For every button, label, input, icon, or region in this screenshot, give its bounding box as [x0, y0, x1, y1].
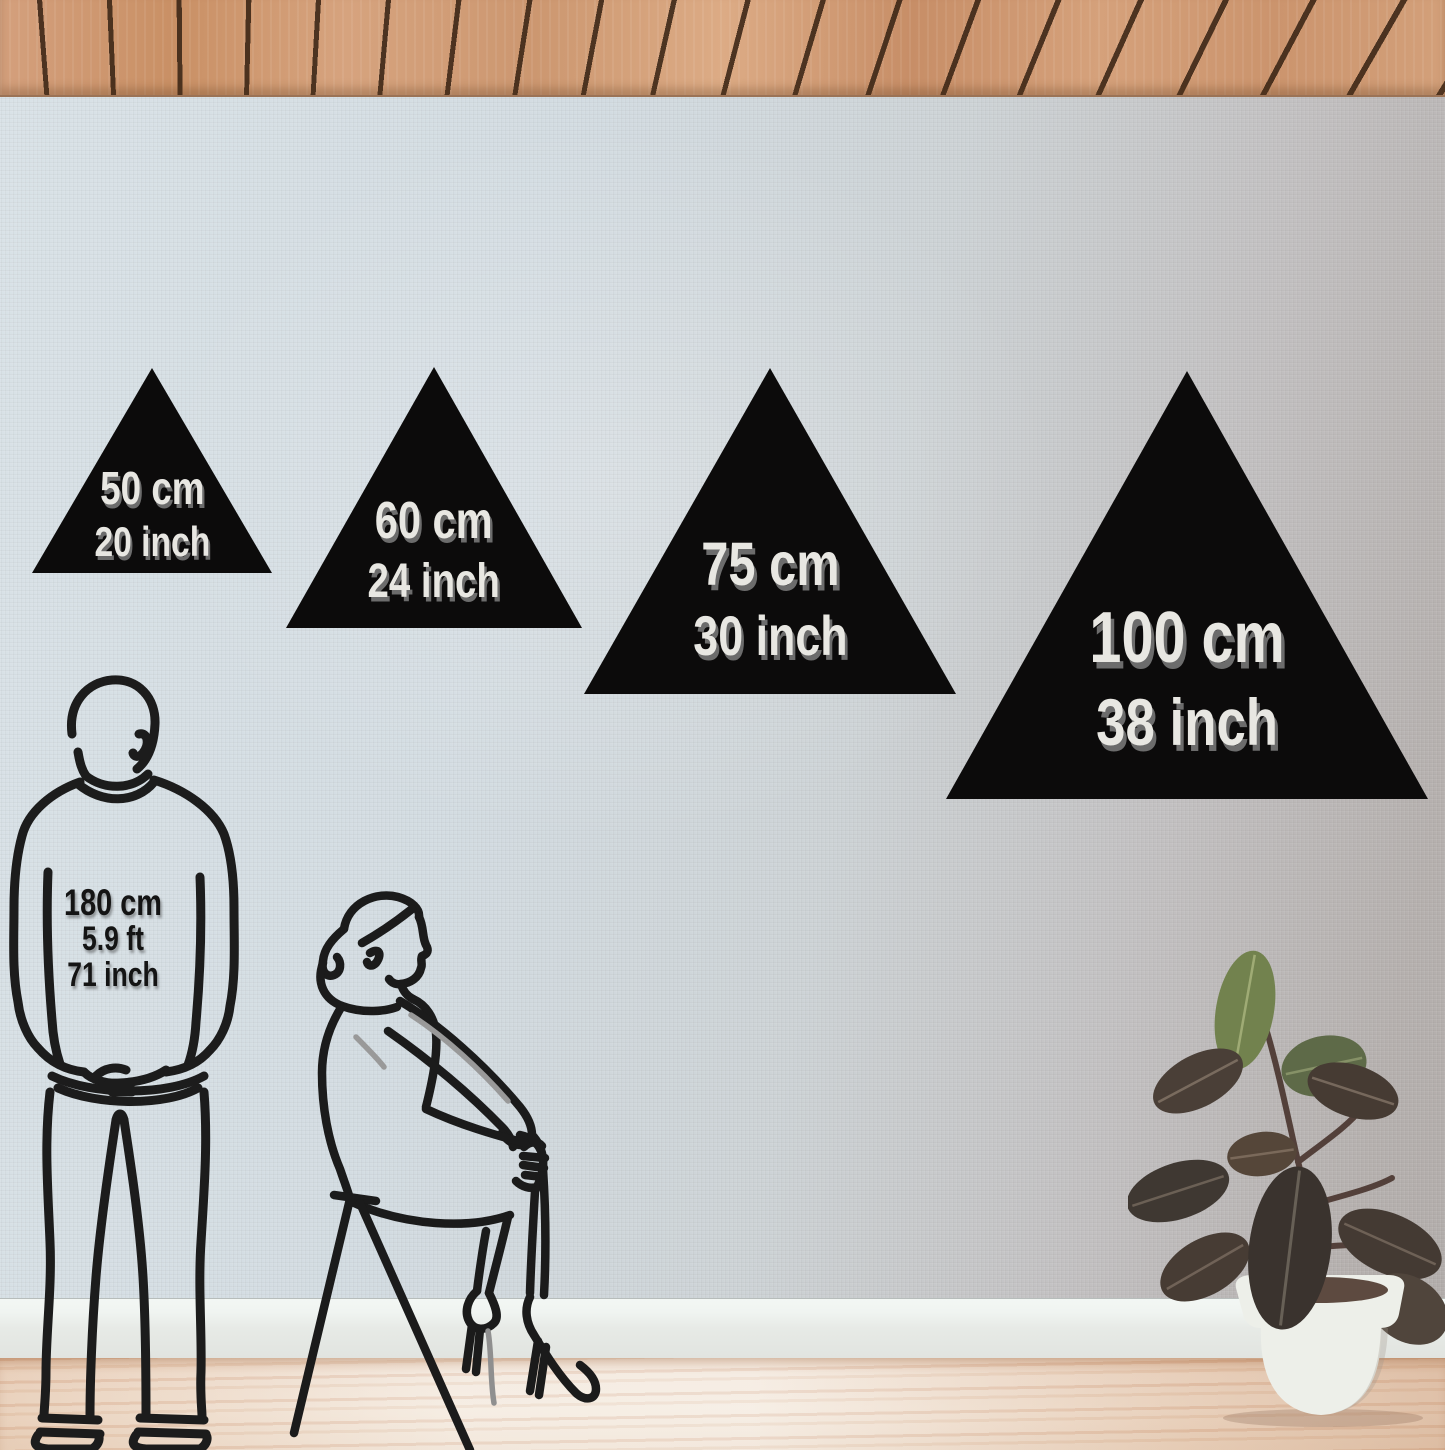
woman-lap: [426, 1109, 525, 1143]
wood-slat-ceiling: [0, 0, 1445, 97]
size-label-inch: 38 inch: [1089, 682, 1284, 763]
size-labels: 50 cm 20 inch: [80, 460, 225, 567]
standing-man-figure: [8, 672, 258, 1450]
size-label-inch: 20 inch: [94, 516, 210, 567]
height-cm: 180 cm: [62, 884, 163, 922]
height-ft: 5.9 ft: [62, 922, 163, 957]
man-ear-icon: [133, 734, 147, 757]
woman-back-leg: [530, 1191, 535, 1293]
stool-seat: [334, 1195, 376, 1201]
stool-front-leg: [294, 1199, 350, 1433]
man-left-leg: [44, 1092, 50, 1416]
size-label-inch: 24 inch: [368, 553, 500, 612]
woman-front-leg: [489, 1217, 508, 1293]
size-labels: 75 cm 30 inch: [674, 527, 867, 670]
woman-ear-icon: [367, 951, 379, 966]
man-right-leg: [200, 1092, 206, 1416]
potted-plant: [1128, 938, 1445, 1433]
woman-ponytail: [323, 929, 344, 976]
size-labels: 60 cm 24 inch: [351, 490, 516, 612]
person-height-label: 180 cm 5.9 ft 71 inch: [62, 884, 163, 993]
man-collar: [86, 774, 148, 786]
woman-back: [322, 1006, 350, 1199]
sketch-shading-heel: [488, 1331, 494, 1403]
height-inch: 71 inch: [62, 958, 163, 993]
room-scene: 50 cm 20 inch 60 cm 24 inch 75 cm 30 inc…: [0, 0, 1445, 1450]
size-labels: 100 cm 38 inch: [1065, 595, 1309, 763]
size-label-inch: 30 inch: [693, 602, 847, 670]
size-label-cm: 100 cm: [1089, 595, 1284, 683]
stool-back-leg: [360, 1203, 470, 1450]
size-label-cm: 75 cm: [693, 527, 847, 601]
size-label-cm: 60 cm: [368, 490, 500, 553]
size-label-cm: 50 cm: [94, 460, 210, 516]
sitting-woman-figure: [280, 885, 620, 1450]
man-torso: [47, 872, 60, 1064]
